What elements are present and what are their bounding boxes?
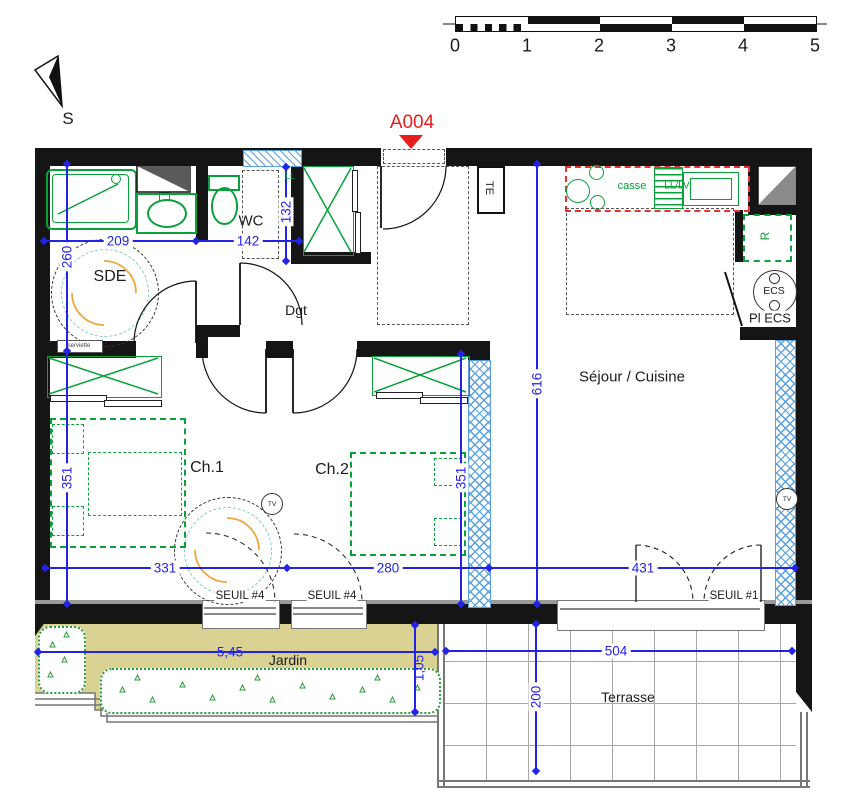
hedge-small xyxy=(38,626,86,694)
label-ecs: ECS xyxy=(763,285,785,297)
window-glazing xyxy=(204,613,276,615)
floor-plan: 0 1 2 3 4 5 S A004 xyxy=(0,0,846,800)
scale-tick-4: 4 xyxy=(738,36,748,57)
dim-terrasse-width: 504 xyxy=(602,644,631,659)
hedge-long xyxy=(100,668,441,714)
wall-right xyxy=(796,148,812,617)
shower-drain-icon xyxy=(111,174,121,184)
dim-sde-width: 209 xyxy=(104,234,133,249)
room-label-wc: WC xyxy=(239,213,264,230)
sink-basin-inner xyxy=(690,178,732,200)
room-label-plecs: Pl ECS xyxy=(747,311,793,326)
kitchen-clearance xyxy=(566,208,734,315)
dim-closet-depth: 132 xyxy=(279,198,294,227)
closet-ch1 xyxy=(47,356,162,398)
tv-label: TV xyxy=(783,496,791,503)
toilet-bowl xyxy=(211,187,238,225)
ch2-door xyxy=(293,349,357,413)
scale-seg-1-2 xyxy=(528,17,600,31)
dim-jardin-width: 5,45 xyxy=(214,645,246,660)
dim-ch1-width: 331 xyxy=(151,561,180,576)
dim-sejour-width: 431 xyxy=(629,561,658,576)
dim-ch2-depth: 351 xyxy=(454,464,469,493)
wall-bottom-1 xyxy=(35,604,205,624)
dim-sejour-depth: 616 xyxy=(530,370,545,399)
room-label-ch2: Ch.2 xyxy=(315,461,349,479)
north-arrow-icon xyxy=(25,48,95,118)
bed-ch1-mattress xyxy=(88,452,182,516)
window-ch2 xyxy=(291,600,367,629)
wall-right-lower xyxy=(796,617,812,712)
dim-ch2-width: 280 xyxy=(374,561,403,576)
room-label-sde: SDE xyxy=(94,268,127,286)
label-fridge-r: R xyxy=(758,232,772,241)
scale-tick-1: 1 xyxy=(522,36,532,57)
scale-bar-bar xyxy=(455,16,817,32)
wall-fridge-left xyxy=(735,210,743,262)
label-ll-lv: LL/LV xyxy=(664,181,689,192)
label-seuil1: SEUIL #1 xyxy=(709,590,760,602)
dim-jardin-depth: 1,05 xyxy=(412,652,427,684)
duct-symbol-corner xyxy=(758,166,796,205)
hatch-cap xyxy=(468,341,490,361)
terrasse-border xyxy=(443,617,445,788)
room-label-sejour: Séjour / Cuisine xyxy=(579,369,685,386)
closet-dgt xyxy=(303,166,354,256)
window-glazing xyxy=(293,607,363,609)
label-towel: serviette xyxy=(68,343,91,349)
room-label-terrasse: Terrasse xyxy=(601,689,655,705)
entrance-recess xyxy=(383,149,445,164)
scale-seg-3-4 xyxy=(672,17,744,31)
scale-tick-0: 0 xyxy=(450,36,460,57)
tv-label: TV xyxy=(268,501,276,508)
window-glazing xyxy=(204,607,276,609)
scale-seg-2-3 xyxy=(600,17,672,31)
wall-corridor-mid xyxy=(266,341,293,358)
nightstand xyxy=(434,518,462,546)
tv-outlet-ch1: TV xyxy=(261,493,283,515)
room-label-jardin: Jardin xyxy=(269,652,307,668)
ch1-door xyxy=(202,349,266,413)
closet-ch1-door xyxy=(50,395,107,402)
wall-plecs-bottom xyxy=(740,327,796,340)
unit-label: A004 xyxy=(390,112,434,134)
water-heater-knob-icon xyxy=(769,273,780,284)
scale-bar: 0 1 2 3 4 5 xyxy=(455,10,815,55)
window-ch1 xyxy=(202,600,280,629)
terrasse-border xyxy=(800,712,802,788)
label-seuil4-ch1: SEUIL #4 xyxy=(215,590,266,602)
dim-sde-depth: 260 xyxy=(60,243,75,272)
dim-line xyxy=(66,164,68,604)
scale-seg-4-5 xyxy=(744,17,816,31)
door-sill-line xyxy=(560,608,760,610)
cooktop-burner xyxy=(566,179,590,203)
scale-tick-3: 3 xyxy=(666,36,676,57)
cooktop-burner xyxy=(589,165,604,180)
closet-ch1-door xyxy=(104,400,162,407)
label-seuil4-ch2: SEUIL #4 xyxy=(307,590,358,602)
window-glazing xyxy=(293,613,363,615)
dim-ch1-depth: 351 xyxy=(60,464,75,493)
room-label-dgt: Dgt xyxy=(285,302,307,318)
duct-symbol-sde xyxy=(137,166,190,192)
wall-top-right xyxy=(446,148,812,166)
terrasse-border xyxy=(437,780,810,782)
water-heater-knob-icon xyxy=(769,300,780,311)
label-casse: casse xyxy=(618,180,647,192)
turning-circle-ch1-inner xyxy=(184,507,272,595)
nightstand xyxy=(52,506,84,536)
washbasin xyxy=(147,199,187,228)
cooktop-burner xyxy=(590,195,605,210)
scale-tick-5: 5 xyxy=(810,36,820,57)
tv-outlet-sejour: TV xyxy=(776,488,798,510)
door-seuil1-sill xyxy=(557,600,765,631)
scale-tick-2: 2 xyxy=(594,36,604,57)
label-te: TE xyxy=(483,181,495,195)
closet-dgt-door xyxy=(352,170,358,212)
wall-wc-bottom xyxy=(196,325,240,337)
closet-dgt-door xyxy=(355,212,361,254)
hatch-ch2-sejour xyxy=(468,360,491,608)
entry-clearance xyxy=(377,166,469,325)
scale-seg-0-1 xyxy=(456,17,528,31)
wall-top-left xyxy=(35,148,381,166)
wall-bottom-4 xyxy=(763,604,812,624)
nightstand xyxy=(52,424,84,454)
terrasse-border xyxy=(437,786,810,788)
wall-sde-wc xyxy=(196,166,208,242)
dim-terrasse-depth: 200 xyxy=(529,683,544,712)
closet-ch2 xyxy=(372,356,470,396)
room-label-ch1: Ch.1 xyxy=(190,459,224,477)
wall-bottom-3 xyxy=(363,604,557,624)
terrasse-border xyxy=(806,712,808,788)
closet-ch2-door xyxy=(376,392,423,399)
basin-tap-icon xyxy=(159,192,170,201)
label-ll: LL xyxy=(285,171,295,181)
duct-hatch-top xyxy=(243,150,302,167)
dim-wc-width: 142 xyxy=(234,234,263,249)
entry-arrow-icon xyxy=(399,135,423,149)
